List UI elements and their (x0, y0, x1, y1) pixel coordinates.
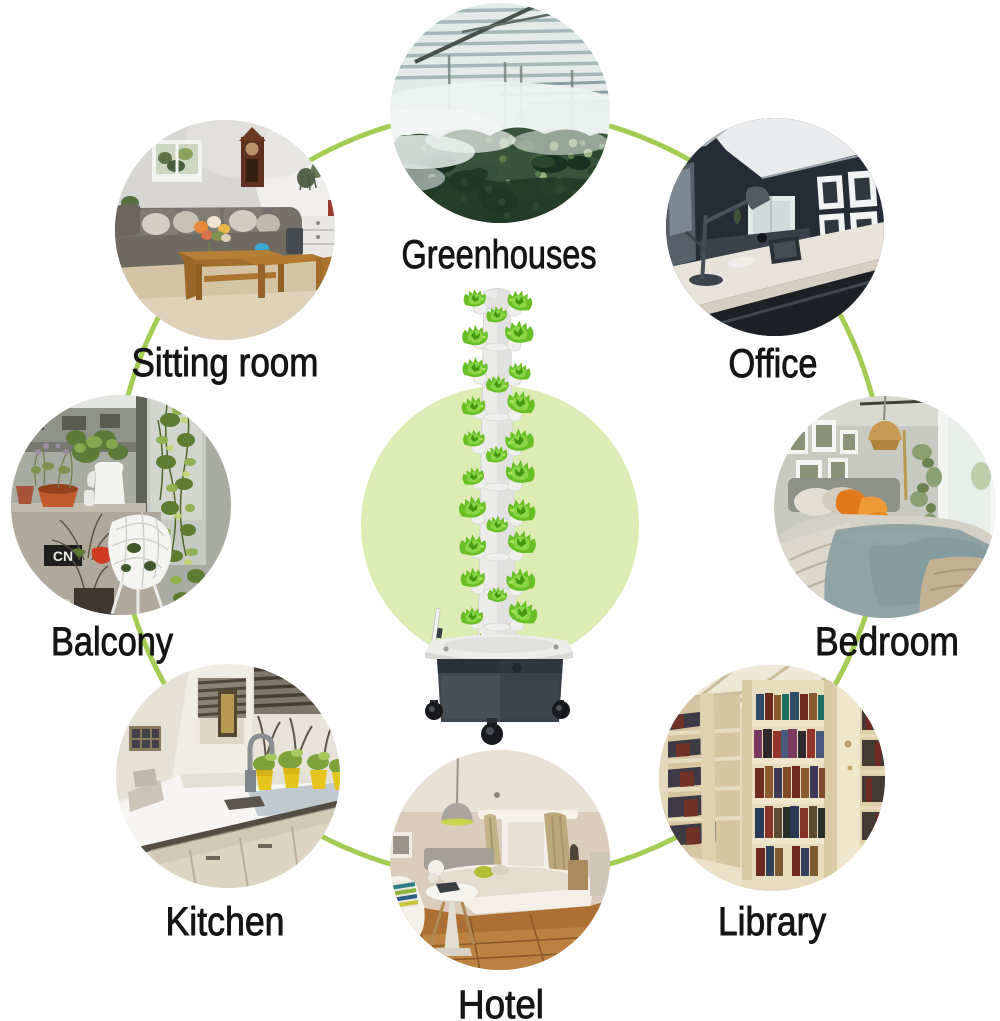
svg-text:Sitting room: Sitting room (132, 341, 319, 385)
svg-text:Office: Office (729, 342, 818, 386)
svg-text:CN: CN (53, 548, 73, 564)
svg-text:Balcony: Balcony (51, 620, 173, 664)
svg-text:Greenhouses: Greenhouses (402, 233, 597, 277)
svg-text:Library: Library (718, 900, 826, 944)
svg-text:Kitchen: Kitchen (166, 900, 285, 944)
svg-text:Hotel: Hotel (458, 983, 544, 1021)
svg-text:Bedroom: Bedroom (815, 620, 959, 664)
